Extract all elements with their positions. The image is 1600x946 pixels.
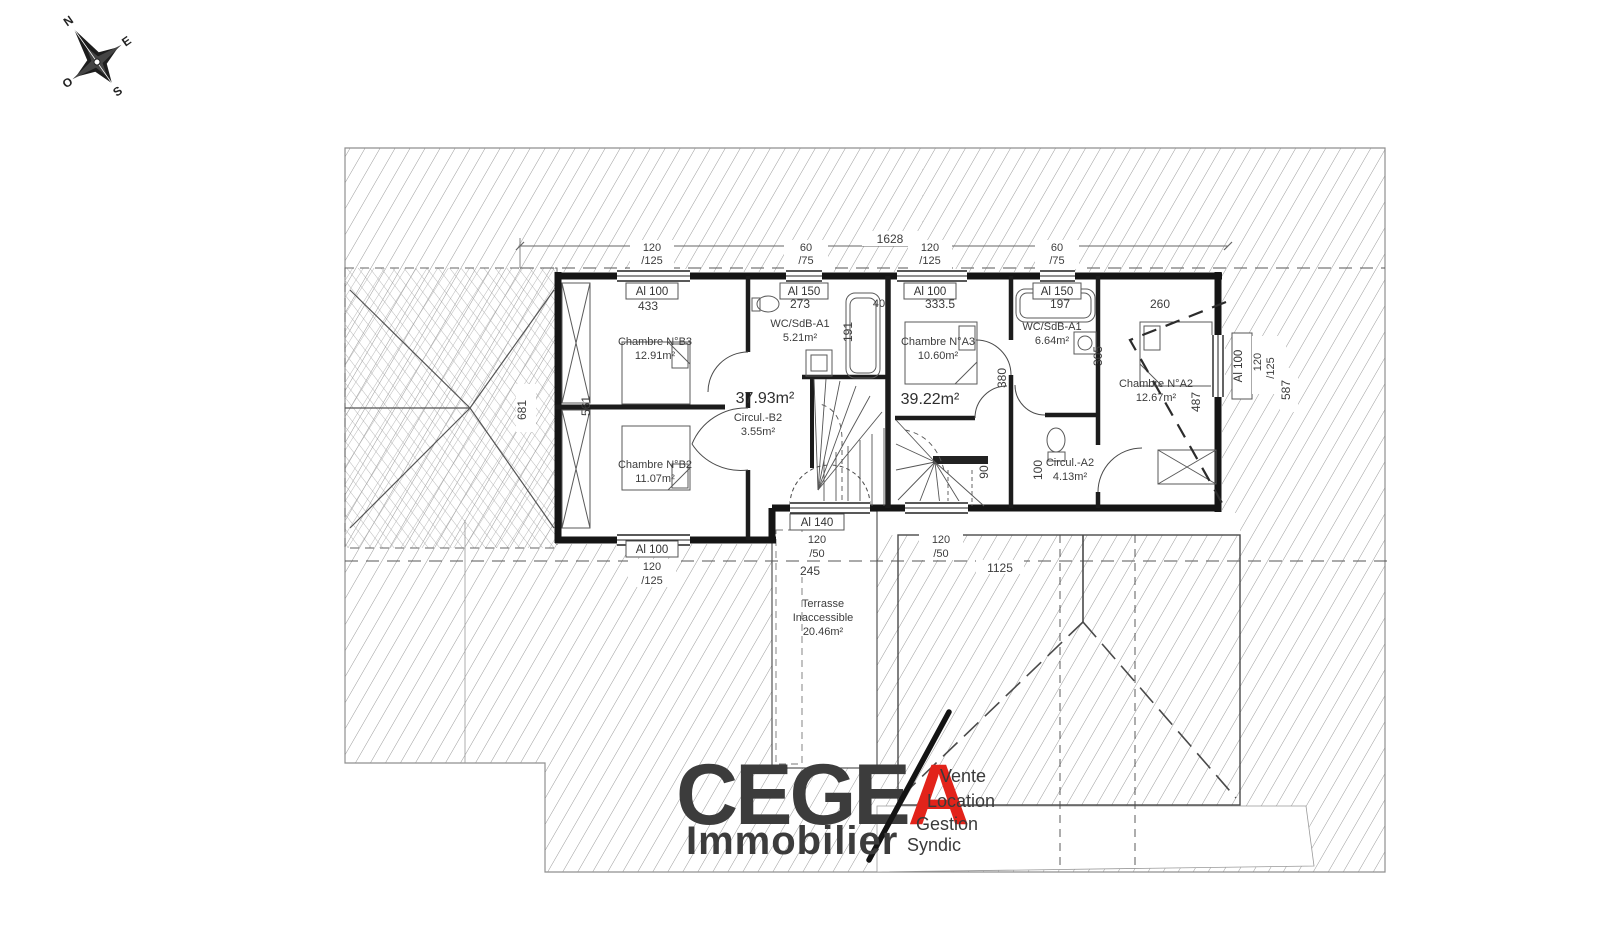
- dim-120-b1: 120: [808, 534, 826, 546]
- dim-60: 60: [1051, 242, 1063, 254]
- dim-60: 60: [800, 242, 812, 254]
- room-area-b2: 11.07m²: [635, 473, 675, 485]
- room-area-a3: 10.60m²: [918, 350, 959, 362]
- dim-1125: 1125: [987, 561, 1013, 575]
- dim-100: 100: [1031, 460, 1045, 480]
- logo-service-2: Location: [927, 791, 995, 811]
- dim-380: 380: [995, 368, 1009, 388]
- floor-plan-svg: Al 100 Al 150 Al 100 Al 150: [0, 0, 1600, 946]
- terrasse-label-1: Terrasse: [802, 598, 844, 610]
- dim-120: 120: [643, 242, 661, 254]
- room-label-circ-b: Circul.-B2: [734, 412, 782, 424]
- terrasse-area-label: 20.46m²: [803, 626, 844, 638]
- room-label-circ-a: Circul.-A2: [1046, 457, 1094, 469]
- dim-191: 191: [841, 322, 855, 342]
- dim-125-r: /125: [1265, 357, 1277, 378]
- window-label: Al 100: [636, 286, 669, 298]
- room-area-circ-a: 4.13m²: [1053, 471, 1088, 483]
- dim-50-b2: /50: [933, 548, 948, 560]
- dim-120-b2: 120: [932, 534, 950, 546]
- dim-120-r: 120: [1252, 353, 1264, 371]
- dim-125-bl: /125: [641, 575, 662, 587]
- room-label-a3: Chambre N°A3: [901, 336, 975, 348]
- dim-90: 90: [977, 465, 991, 479]
- logo-service-1: Vente: [940, 766, 986, 786]
- under-wall-strip: [877, 513, 1240, 535]
- room-label-wc-b: WC/SdB-A1: [770, 318, 829, 330]
- dim-197: 197: [1050, 297, 1070, 311]
- dim-561: 561: [579, 396, 593, 416]
- dim-260: 260: [1150, 297, 1170, 311]
- logo-service-3: Gestion: [916, 814, 978, 834]
- dim-120: 120: [921, 242, 939, 254]
- dim-125: /125: [919, 255, 940, 267]
- room-label-b3: Chambre N°B3: [618, 336, 692, 348]
- dim-40: 40: [873, 298, 885, 310]
- dim-75: /75: [1049, 255, 1064, 267]
- dim-125: /125: [641, 255, 662, 267]
- window-label: Al 100: [636, 544, 669, 556]
- dim-273: 273: [790, 297, 810, 311]
- dim-587: 587: [1279, 380, 1293, 400]
- dim-681: 681: [515, 400, 529, 420]
- dim-433: 433: [638, 299, 658, 313]
- dim-total: 1628: [877, 232, 904, 246]
- zone-b-area: 37.93m²: [736, 390, 795, 407]
- room-area-wc-b: 5.21m²: [783, 332, 818, 344]
- terrasse-label-2: Inaccessible: [793, 612, 854, 624]
- room-area-a2: 12.67m²: [1136, 392, 1177, 404]
- window-label: Al 100: [1233, 350, 1245, 383]
- dim-50-b1: /50: [809, 548, 824, 560]
- room-area-wc-a: 6.64m²: [1035, 335, 1070, 347]
- room-area-circ-b: 3.55m²: [741, 426, 776, 438]
- logo-subtitle: Immobilier: [686, 819, 898, 863]
- window-label: Al 140: [801, 517, 834, 529]
- room-label-wc-a: WC/SdB-A1: [1022, 321, 1081, 333]
- dim-487: 487: [1189, 392, 1203, 412]
- dim-75: /75: [798, 255, 813, 267]
- dim-305: 305: [1091, 346, 1105, 366]
- zone-a-area: 39.22m²: [901, 391, 960, 408]
- floorplan-page: Al 100 Al 150 Al 100 Al 150: [0, 0, 1600, 946]
- logo-service-4: Syndic: [907, 835, 961, 855]
- room-area-b3: 12.91m²: [635, 350, 676, 362]
- dim-245: 245: [800, 564, 820, 578]
- dim-120-bl: 120: [643, 561, 661, 573]
- dim-333-5: 333.5: [925, 297, 955, 311]
- room-label-a2: Chambre N°A2: [1119, 378, 1193, 390]
- room-label-b2: Chambre N°B2: [618, 459, 692, 471]
